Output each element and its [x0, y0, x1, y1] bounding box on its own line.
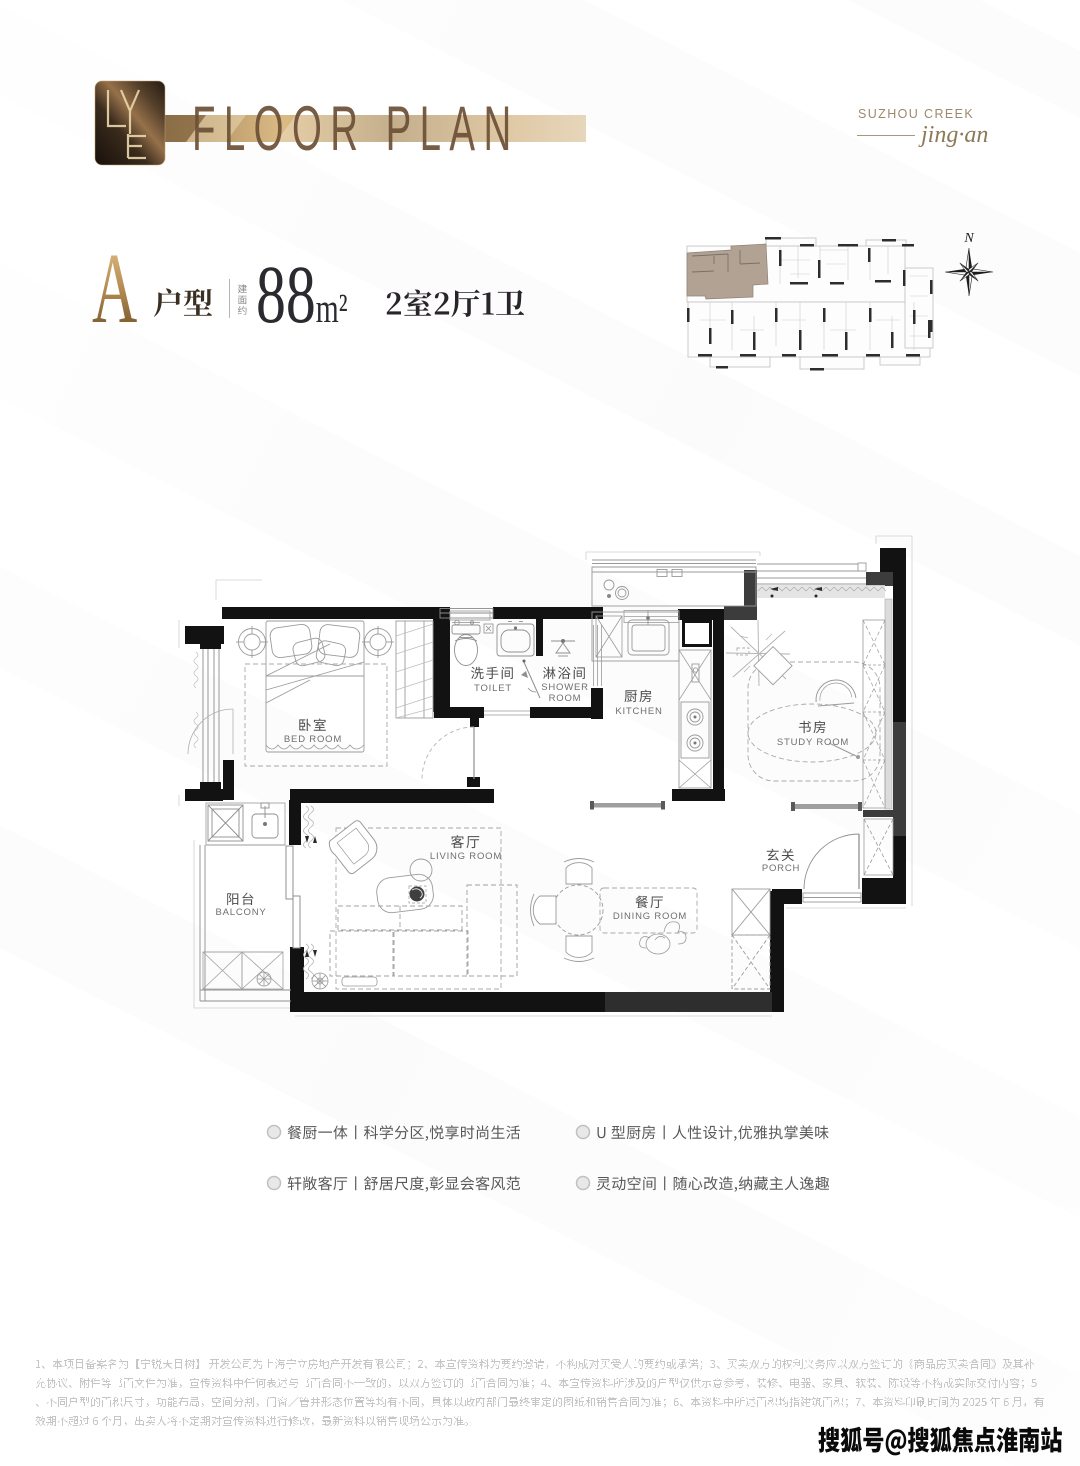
svg-text:DINING ROOM: DINING ROOM	[613, 911, 687, 922]
svg-text:ROOM: ROOM	[549, 693, 582, 704]
svg-text:SHOWER: SHOWER	[541, 682, 589, 693]
svg-text:PORCH: PORCH	[762, 863, 800, 874]
svg-text:LIVING ROOM: LIVING ROOM	[430, 851, 502, 862]
svg-text:KITCHEN: KITCHEN	[615, 706, 662, 717]
svg-text:BED ROOM: BED ROOM	[284, 734, 342, 745]
svg-text:TOILET: TOILET	[474, 683, 512, 694]
svg-text:BALCONY: BALCONY	[215, 907, 266, 918]
svg-text:STUDY ROOM: STUDY ROOM	[777, 737, 849, 748]
